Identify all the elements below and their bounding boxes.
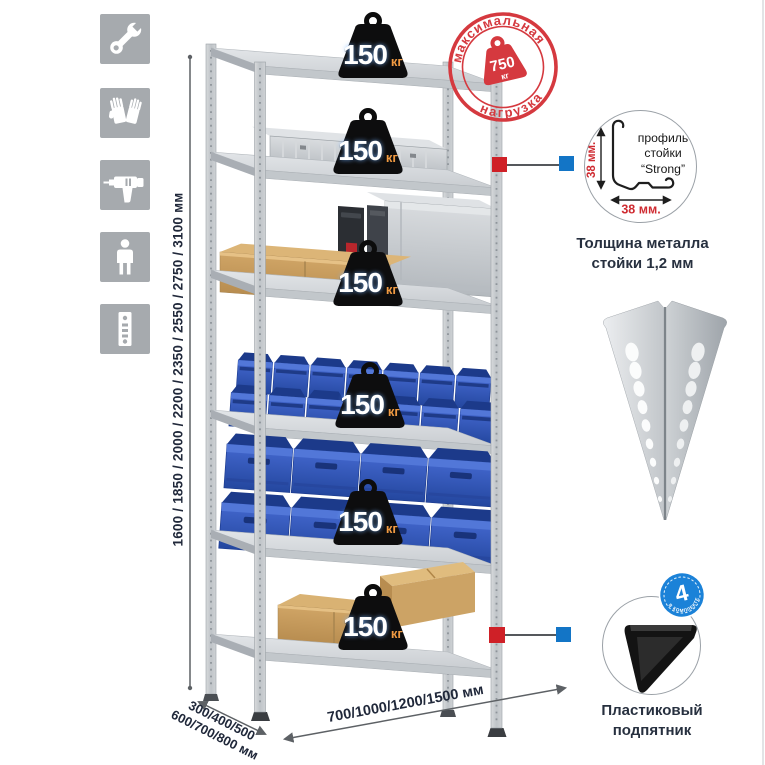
profile-caption: Толщина металла стойки 1,2 мм [565, 234, 720, 274]
profile-label-3: “Strong” [641, 162, 685, 176]
connector-line-bottom [498, 634, 560, 636]
profile-cross-section-drawing: профиль стойки “Strong” 38 мм. 38 мм. [585, 111, 696, 222]
page-edge-line [762, 0, 764, 765]
perforated-profile-icon [101, 305, 149, 353]
sidebar-icon-person [100, 232, 150, 282]
profile-detail-circle: профиль стойки “Strong” 38 мм. 38 мм. [584, 110, 697, 223]
connector-blue-square-bottom [556, 627, 571, 642]
load-value: 150 [343, 39, 387, 71]
connector-red-square-top [492, 157, 507, 172]
drill-icon [101, 161, 149, 209]
load-unit: кг [391, 54, 403, 69]
shelf-load-badge-3: 150кг [321, 240, 415, 312]
shelf-load-badge-2: 150кг [321, 108, 415, 180]
load-unit: кг [391, 626, 403, 641]
shelf-load-badge-1: 150кг [326, 12, 420, 84]
sidebar-icon-gloves [100, 88, 150, 138]
load-value: 150 [340, 389, 384, 421]
connector-blue-square-top [559, 156, 574, 171]
height-dimension-label: 1600 / 1850 / 2000 / 2200 / 2350 / 2550 … [171, 45, 186, 695]
profile-label-2: стойки [644, 146, 681, 160]
load-unit: кг [386, 521, 398, 536]
shelf-load-badge-4: 150кг [323, 362, 417, 434]
load-value: 150 [343, 611, 387, 643]
sidebar-icon-wrench [100, 14, 150, 64]
profile-dim-vertical: 38 мм. [586, 142, 598, 178]
load-unit: кг [386, 282, 398, 297]
quantity-badge: 4 в комплекте [653, 566, 711, 624]
sidebar-icon-perforated-profile [100, 304, 150, 354]
shelf-load-badge-5: 150кг [321, 479, 415, 551]
load-unit: кг [388, 404, 400, 419]
shelf-load-badge-6: 150кг [326, 584, 420, 656]
load-value: 150 [338, 506, 382, 538]
load-value: 150 [338, 135, 382, 167]
angle-post-image [598, 294, 732, 528]
load-value: 150 [338, 267, 382, 299]
foot-caption: Пластиковый подпятник [572, 701, 732, 741]
sidebar-icon-drill [100, 160, 150, 210]
gloves-icon [101, 89, 149, 137]
connector-red-square-bottom [489, 627, 505, 643]
wrench-icon [101, 15, 149, 63]
profile-label-1: профиль [638, 131, 688, 145]
shelving-infographic: 150кг 150кг 150кг 150кг 150кг 150кг макс… [0, 0, 765, 765]
connector-line-top [500, 164, 566, 166]
person-icon [101, 233, 149, 281]
load-unit: кг [386, 150, 398, 165]
profile-dim-horizontal: 38 мм. [621, 203, 660, 217]
